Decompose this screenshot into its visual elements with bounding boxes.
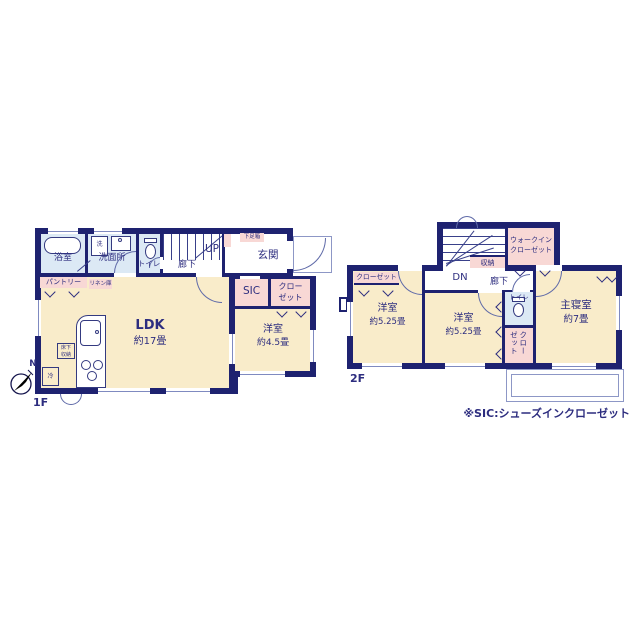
- compass: N: [0, 0, 640, 640]
- compass-north-label: N: [28, 359, 38, 370]
- floorplan-image: 洗 床下収納 冷 パントリー リネン庫 下足箱: [0, 0, 640, 640]
